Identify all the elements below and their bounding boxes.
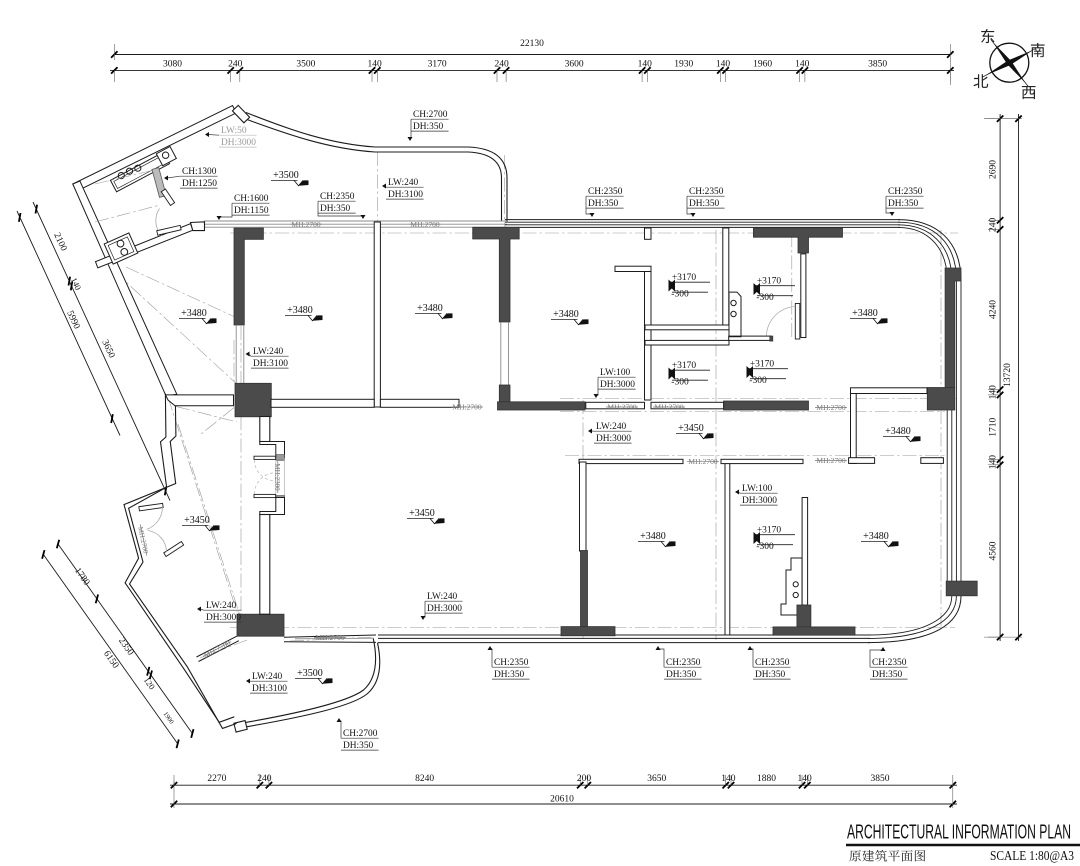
svg-text:CH:1600: CH:1600 [234, 194, 269, 204]
svg-text:LW:240: LW:240 [252, 672, 283, 682]
svg-text:+3450: +3450 [409, 508, 435, 519]
svg-text:DH:3100: DH:3100 [253, 359, 288, 369]
svg-text:+3170: +3170 [750, 360, 775, 370]
svg-text:CH:2350: CH:2350 [494, 658, 529, 668]
svg-text:+3480: +3480 [852, 308, 878, 319]
svg-text:140: 140 [721, 774, 736, 784]
svg-text:+3480: +3480 [553, 309, 579, 320]
svg-text:3850: 3850 [871, 774, 890, 784]
svg-text:200: 200 [577, 774, 592, 784]
svg-text:+3480: +3480 [287, 305, 313, 316]
svg-text:140: 140 [638, 60, 653, 70]
svg-text:DH:1150: DH:1150 [234, 206, 269, 216]
svg-text:-300: -300 [756, 542, 774, 552]
svg-text:DH:350: DH:350 [755, 670, 786, 680]
svg-text:+3450: +3450 [184, 515, 210, 526]
svg-text:DH:350: DH:350 [320, 204, 351, 214]
svg-text:CH:1300: CH:1300 [182, 167, 217, 177]
svg-text:LW:100: LW:100 [600, 368, 631, 378]
svg-text:DH:3100: DH:3100 [252, 684, 287, 694]
svg-text:3080: 3080 [163, 60, 182, 70]
svg-text:LW:100: LW:100 [742, 484, 773, 494]
svg-text:140: 140 [989, 455, 999, 470]
svg-text:+3480: +3480 [863, 531, 889, 542]
svg-text:2690: 2690 [989, 160, 999, 179]
svg-text:CH:2350: CH:2350 [872, 658, 907, 668]
svg-text:140: 140 [716, 60, 731, 70]
svg-text:DH:350: DH:350 [413, 122, 444, 132]
svg-text:-300: -300 [671, 290, 689, 300]
svg-text:DH:3000: DH:3000 [742, 496, 777, 506]
svg-text:DH:3000: DH:3000 [596, 434, 631, 444]
svg-text:+3480: +3480 [417, 303, 443, 314]
svg-text:240: 240 [494, 60, 509, 70]
svg-text:DH:1250: DH:1250 [182, 179, 217, 189]
svg-text:LW:240: LW:240 [596, 422, 627, 432]
svg-text:DH:350: DH:350 [666, 670, 697, 680]
svg-text:-300: -300 [756, 293, 774, 303]
svg-text:DH:3000: DH:3000 [221, 138, 256, 148]
svg-text:240: 240 [228, 60, 243, 70]
svg-text:240: 240 [989, 218, 999, 233]
svg-text:+3170: +3170 [672, 273, 697, 283]
svg-text:CH:2350: CH:2350 [689, 187, 724, 197]
svg-text:+3170: +3170 [672, 361, 697, 371]
svg-text:-300: -300 [749, 376, 767, 386]
svg-text:2270: 2270 [207, 774, 226, 784]
svg-text:3600: 3600 [565, 60, 584, 70]
svg-text:8240: 8240 [415, 774, 434, 784]
svg-text:CH:2350: CH:2350 [755, 658, 790, 668]
svg-text:LW:50: LW:50 [221, 126, 247, 136]
svg-text:DH:350: DH:350 [872, 670, 903, 680]
svg-text:DH:350: DH:350 [343, 741, 374, 751]
svg-text:3850: 3850 [868, 60, 887, 70]
svg-text:3500: 3500 [296, 60, 315, 70]
svg-text:-300: -300 [671, 378, 689, 388]
svg-text:CH:2350: CH:2350 [666, 658, 701, 668]
svg-text:4560: 4560 [989, 541, 999, 560]
svg-text:ARCHITECTURAL INFORMATION PLAN: ARCHITECTURAL INFORMATION PLAN [847, 821, 1071, 844]
svg-text:22130: 22130 [520, 39, 544, 49]
svg-text:1960: 1960 [753, 60, 772, 70]
svg-text:+3480: +3480 [885, 426, 911, 437]
svg-text:1930: 1930 [674, 60, 693, 70]
svg-text:240: 240 [257, 774, 272, 784]
svg-text:LW:240: LW:240 [388, 178, 419, 188]
svg-text:CH:2350: CH:2350 [888, 187, 923, 197]
svg-text:140: 140 [989, 385, 999, 400]
svg-text:+3500: +3500 [297, 668, 323, 679]
svg-text:MH:2300: MH:2300 [273, 463, 281, 491]
svg-text:DH:350: DH:350 [588, 199, 619, 209]
svg-text:CH:2700: CH:2700 [343, 729, 378, 739]
svg-text:DH:350: DH:350 [689, 199, 720, 209]
svg-text:CH:2350: CH:2350 [588, 187, 623, 197]
svg-text:140: 140 [367, 60, 382, 70]
svg-text:+3480: +3480 [640, 531, 666, 542]
svg-text:1880: 1880 [757, 774, 776, 784]
svg-text:DH:3000: DH:3000 [206, 613, 241, 623]
svg-text:3650: 3650 [647, 774, 666, 784]
svg-text:20610: 20610 [550, 795, 574, 805]
svg-text:140: 140 [797, 774, 812, 784]
svg-text:DH:3100: DH:3100 [388, 190, 423, 200]
svg-text:+3170: +3170 [757, 526, 782, 536]
svg-text:CH:2350: CH:2350 [320, 192, 355, 202]
svg-text:CH:2700: CH:2700 [413, 110, 448, 120]
svg-text:LW:240: LW:240 [427, 592, 458, 602]
svg-text:DH:350: DH:350 [494, 670, 525, 680]
svg-text:LW:240: LW:240 [206, 601, 237, 611]
svg-text:140: 140 [795, 60, 810, 70]
svg-text:SCALE 1:80@A3: SCALE 1:80@A3 [990, 848, 1074, 863]
svg-text:+3170: +3170 [757, 277, 782, 287]
svg-text:+3480: +3480 [181, 308, 207, 319]
svg-text:LW:240: LW:240 [253, 347, 284, 357]
svg-text:4240: 4240 [989, 300, 999, 319]
svg-text:+3500: +3500 [273, 170, 299, 181]
svg-text:DH:350: DH:350 [888, 199, 919, 209]
svg-text:13720: 13720 [1003, 363, 1013, 387]
svg-text:1710: 1710 [989, 417, 999, 436]
svg-text:3170: 3170 [428, 60, 447, 70]
svg-text:DH:3000: DH:3000 [427, 604, 462, 614]
svg-text:+3450: +3450 [678, 423, 704, 434]
svg-text:DH:3000: DH:3000 [600, 380, 635, 390]
